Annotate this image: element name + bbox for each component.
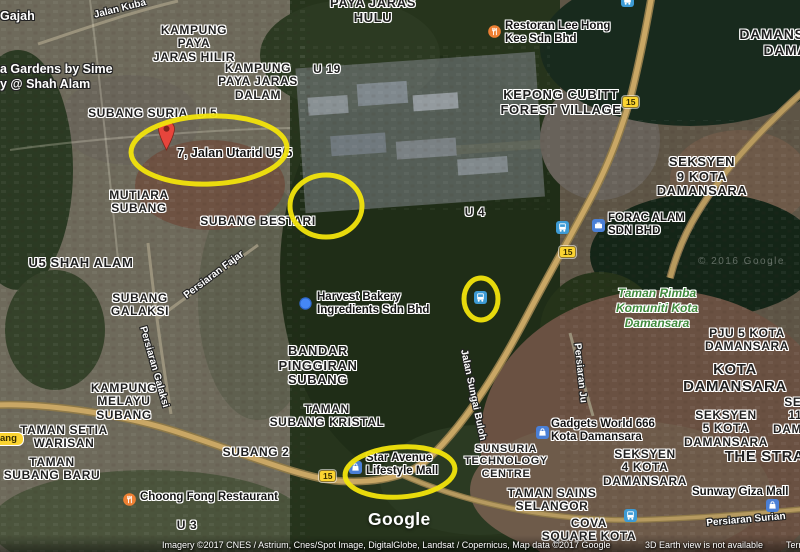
area-label-u3: U 3 [177, 519, 197, 532]
terms-link[interactable]: Terms [786, 540, 800, 550]
area-label-the-strand: THE STRAND [725, 449, 800, 466]
area-label-subang-galaksi: SUBANGGALAKSI [111, 292, 169, 319]
area-label-bandar-pinggiran-subang: BANDARPINGGIRANSUBANG [278, 344, 357, 388]
area-label-subang-suria: SUBANG SURIA [88, 107, 188, 120]
area-label-taman-subang-baru: TAMANSUBANG BARU [4, 456, 101, 483]
area-label-u5-shah-alam: U5 SHAH ALAM [29, 256, 134, 271]
poi-label-forac-alam-sdn-bhd[interactable]: FORAC ALAMSDN BHD [608, 212, 685, 238]
label-layer: PAYA JARASHULUKAMPUNGPAYAJARAS HILIRKAMP… [0, 0, 800, 552]
shopping-icon[interactable] [766, 499, 779, 512]
area-label-paya-jaras-hulu: PAYA JARASHULU [330, 0, 416, 25]
map-canvas[interactable]: PAYA JARASHULUKAMPUNGPAYAJARAS HILIRKAMP… [0, 0, 800, 552]
route-15-badge: 15 [622, 96, 639, 108]
area-label-seksyen-11: SEKSYEN11 KOTADAMANSARA [773, 396, 800, 436]
park-label-taman-rimba-komuniti: Taman RimbaKomuniti KotaDamansara [616, 286, 698, 331]
area-label-kampung-paya-jaras-hilir: KAMPUNGPAYAJARAS HILIR [153, 24, 235, 64]
imagery-credit: Imagery ©2017 CNES / Astrium, Cnes/Spot … [162, 540, 611, 550]
area-label-taman-setia-warisan: TAMAN SETIAWARISAN [20, 424, 108, 451]
poi-label-harvest-bakery[interactable]: Harvest BakeryIngredients Sdn Bhd [317, 291, 429, 317]
area-label-seksyen-5-kota-damansara: SEKSYEN5 KOTADAMANSARA [684, 409, 768, 449]
area-label-seksyen-9-kota-damansara: SEKSYEN9 KOTADAMANSARA [657, 155, 748, 199]
area-label-kepong-cubitt-forest-village: KEPONG CUBITTFOREST VILLAGE [500, 88, 621, 117]
road-label-persiaran-surian: Persiaran Surian [706, 511, 786, 529]
road-label-jalan-sungai-buloh: Jalan Sungai Buloh [458, 348, 488, 441]
area-label-seksyen-4-kota-damansara: SEKSYEN4 KOTADAMANSARA [603, 448, 687, 488]
bus-stop-icon[interactable] [556, 221, 569, 234]
attribution-bar: Imagery ©2017 CNES / Astrium, Cnes/Spot … [0, 535, 800, 552]
earth-view-notice: 3D Earth view is not available [645, 540, 763, 550]
shopping-icon[interactable] [536, 426, 549, 439]
dot-icon[interactable] [299, 297, 312, 310]
route-15-badge: 15 [559, 246, 576, 258]
area-label-u5: U 5 [197, 107, 217, 120]
road-name-pill: ang [0, 432, 24, 446]
area-label-kampung-melayu-subang: KAMPUNGMELAYUSUBANG [91, 382, 157, 422]
bus-stop-icon[interactable] [621, 0, 634, 7]
area-label-damansara-damai: DAMANSARADAMAI [739, 27, 800, 58]
shopping-icon[interactable] [349, 461, 362, 474]
area-label-kota-damansara: KOTADAMANSARA [683, 362, 787, 396]
area-label-pju-5-kota-damansara: PJU 5 KOTADAMANSARA [705, 327, 789, 354]
label-gajah: Gajah [0, 9, 35, 24]
restaurant-icon[interactable] [123, 493, 136, 506]
area-label-sunsuria-technology-centre: SUNSURIATECHNOLOGYCENTRE [464, 443, 548, 480]
road-label-jalan-kuba: Jalan Kuba [93, 0, 147, 21]
area-label-taman-sains-selangor: TAMAN SAINSSELANGOR [507, 487, 596, 514]
work-icon[interactable] [592, 219, 605, 232]
area-label-taman-subang-kristal: TAMANSUBANG KRISTAL [270, 403, 385, 430]
poi-label-star-avenue-lifestyle-mall[interactable]: Star AvenueLifestyle Mall [366, 452, 438, 478]
poi-label-choong-fong-restaurant[interactable]: Choong Fong Restaurant [140, 491, 278, 504]
bus-stop-icon[interactable] [624, 509, 637, 522]
pin-address-label: 7, Jalan Utarid U5/5 [177, 146, 292, 160]
label-gardens-by-sime: a Gardens by Simey @ Shah Alam [0, 62, 113, 92]
poi-label-restoran-lee-hong-kee[interactable]: Restoran Lee HongKee Sdn Bhd [505, 20, 610, 46]
bus-stop-icon[interactable] [474, 291, 487, 304]
area-label-mutiara-subang: MUTIARASUBANG [109, 189, 169, 216]
google-logo[interactable]: Google [368, 509, 431, 530]
area-label-u4: U 4 [465, 206, 485, 219]
poi-label-sunway-giza-mall[interactable]: Sunway Giza Mall [692, 486, 789, 499]
area-label-u19: U 19 [313, 63, 341, 76]
area-label-kampung-paya-jaras-dalam: KAMPUNGPAYA JARASDALAM [218, 62, 298, 102]
location-pin[interactable] [157, 120, 176, 152]
road-label-persiaran-fajar: Persiaran Fajar [182, 249, 246, 301]
area-label-subang-bestari: SUBANG BESTARI [200, 215, 316, 228]
area-label-subang-2: SUBANG 2 [223, 446, 290, 459]
poi-label-gadgets-world-666[interactable]: Gadgets World 666Kota Damansara [551, 418, 655, 444]
restaurant-icon[interactable] [488, 25, 501, 38]
road-label-persiaran-ju: Persiaran Ju [571, 343, 588, 404]
route-15-badge: 15 [319, 470, 336, 482]
